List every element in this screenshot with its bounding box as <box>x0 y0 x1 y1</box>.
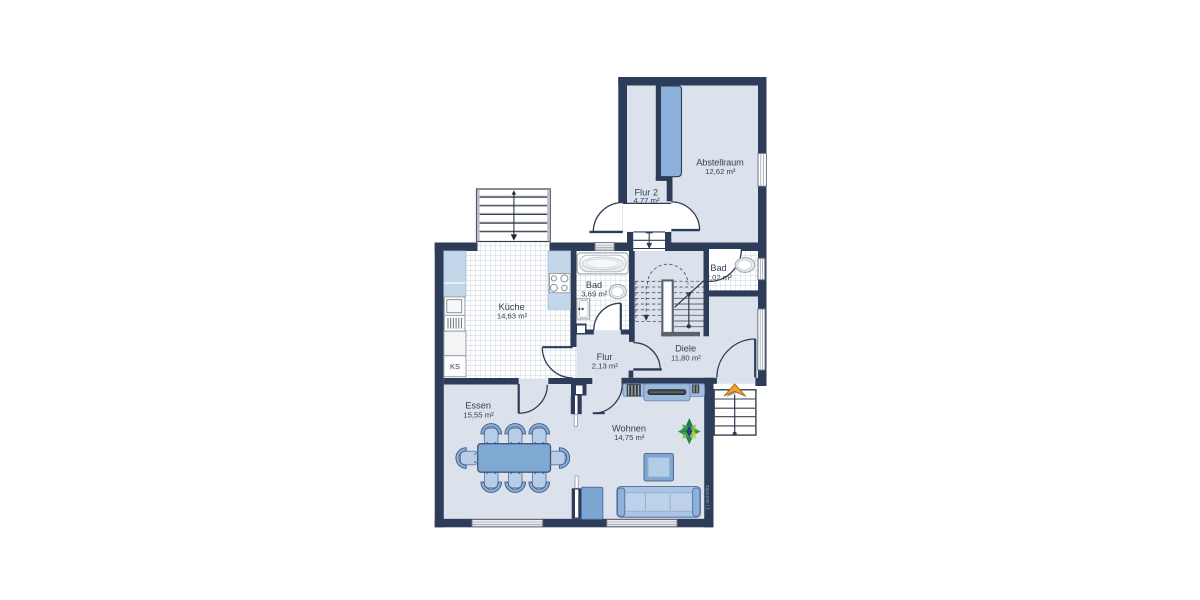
svg-text:2,13 m²: 2,13 m² <box>592 362 619 371</box>
svg-text:Wohnen: Wohnen <box>612 424 646 434</box>
svg-text:( ) wohnfitz: ( ) wohnfitz <box>705 485 711 510</box>
svg-text:15,55 m²: 15,55 m² <box>463 410 494 419</box>
svg-text:Flur: Flur <box>597 352 613 362</box>
svg-text:12,62 m²: 12,62 m² <box>705 167 736 176</box>
svg-text:11,80 m²: 11,80 m² <box>671 353 701 362</box>
svg-text:Abstellraum: Abstellraum <box>696 157 744 167</box>
svg-text:2,02 m²: 2,02 m² <box>706 273 733 282</box>
svg-text:14,75 m²: 14,75 m² <box>614 433 645 442</box>
svg-text:KS: KS <box>450 362 460 371</box>
svg-text:Bad: Bad <box>586 280 602 290</box>
svg-text:14,63 m²: 14,63 m² <box>497 312 528 321</box>
svg-text:Küche: Küche <box>499 302 525 312</box>
svg-text:3,69 m²: 3,69 m² <box>581 290 608 299</box>
svg-text:Bad: Bad <box>710 263 726 273</box>
svg-text:Essen: Essen <box>465 401 491 411</box>
svg-text:4,77 m²: 4,77 m² <box>633 196 660 205</box>
svg-text:Diele: Diele <box>675 344 696 354</box>
